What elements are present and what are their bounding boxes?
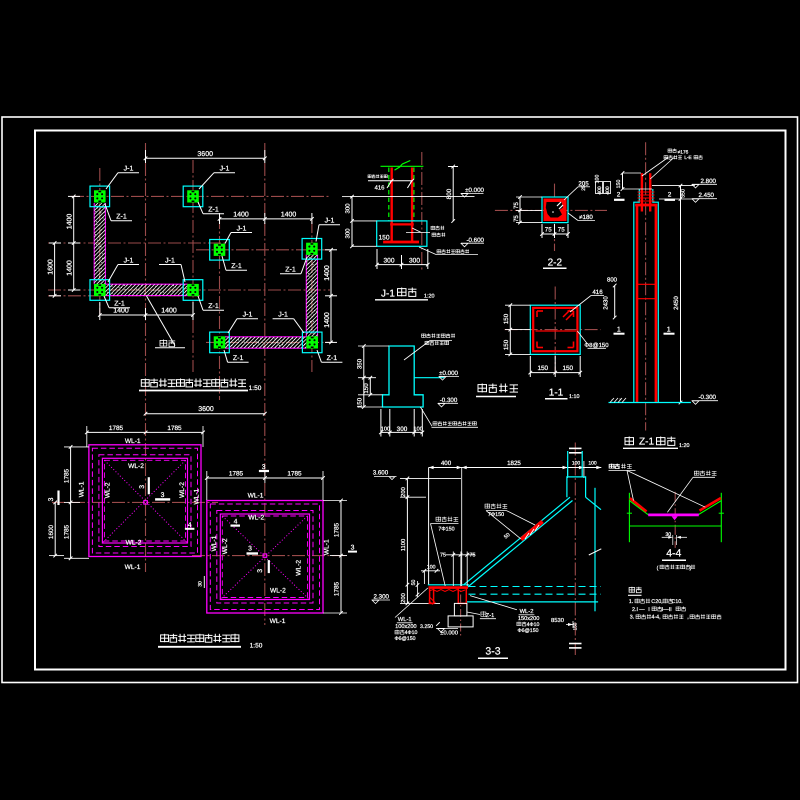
svg-text:J-1: J-1 <box>237 225 247 232</box>
svg-text:1-1: 1-1 <box>549 388 564 399</box>
svg-text:WL-2: WL-2 <box>128 463 144 470</box>
svg-text:300: 300 <box>345 228 352 239</box>
svg-text:30: 30 <box>665 532 671 538</box>
svg-text:150: 150 <box>616 180 622 189</box>
svg-text:4-4: 4-4 <box>666 548 681 560</box>
svg-text:Z-1: Z-1 <box>114 301 125 308</box>
svg-text:416: 416 <box>375 185 386 192</box>
svg-text:WL-2: WL-2 <box>222 538 229 554</box>
svg-text:1:10: 1:10 <box>569 394 580 400</box>
svg-text:800: 800 <box>446 188 453 199</box>
svg-text:300: 300 <box>409 257 420 264</box>
svg-text:-0.300: -0.300 <box>698 394 716 401</box>
svg-text:WL-2: WL-2 <box>270 587 286 594</box>
svg-text:WL-2: WL-2 <box>295 560 302 576</box>
svg-text:200: 200 <box>400 593 407 603</box>
svg-text:1400: 1400 <box>113 308 129 315</box>
svg-text:300: 300 <box>383 257 394 264</box>
svg-text:75: 75 <box>545 227 552 234</box>
svg-text:1785: 1785 <box>334 522 341 537</box>
svg-text:Z-1: Z-1 <box>208 303 219 310</box>
svg-text:150: 150 <box>573 622 578 630</box>
svg-text:3600: 3600 <box>198 406 214 413</box>
svg-text:1600: 1600 <box>47 259 54 275</box>
svg-text:WL-2: WL-2 <box>126 539 142 546</box>
svg-text:±0.000: ±0.000 <box>439 370 458 377</box>
svg-text:3.: 3. <box>630 615 635 621</box>
svg-text:150: 150 <box>357 397 364 408</box>
svg-text:2.300: 2.300 <box>374 593 390 600</box>
svg-text:): ) <box>690 565 692 571</box>
svg-text:2-2: 2-2 <box>548 258 563 269</box>
svg-text:1:50: 1:50 <box>249 385 262 392</box>
svg-text:Z-1: Z-1 <box>486 613 494 619</box>
svg-text:150: 150 <box>562 365 573 372</box>
svg-text:WL-2: WL-2 <box>248 514 264 521</box>
svg-text:100: 100 <box>414 427 423 433</box>
svg-text:7Φ150: 7Φ150 <box>488 512 504 518</box>
svg-text:Φ8@150: Φ8@150 <box>584 342 609 349</box>
svg-text:,I—II: ,I—II <box>660 607 671 613</box>
svg-text:350: 350 <box>681 189 687 198</box>
svg-text:Z-1: Z-1 <box>116 214 127 221</box>
svg-text:1.: 1. <box>629 599 634 605</box>
svg-text:3: 3 <box>351 545 355 552</box>
svg-text:1785: 1785 <box>63 524 70 539</box>
svg-text:J-1: J-1 <box>165 257 175 264</box>
svg-text:1785: 1785 <box>229 471 244 478</box>
svg-text:2450: 2450 <box>673 296 680 310</box>
svg-text:WL-1: WL-1 <box>248 493 264 500</box>
svg-text:J-1: J-1 <box>381 289 395 300</box>
svg-text:-0.300: -0.300 <box>440 397 458 404</box>
svg-text:Z-1: Z-1 <box>327 355 338 362</box>
svg-text:3-3: 3-3 <box>485 646 500 658</box>
svg-text:WL-2: WL-2 <box>179 482 186 498</box>
svg-text:75: 75 <box>513 215 520 222</box>
svg-text:100: 100 <box>588 460 597 466</box>
svg-text:30: 30 <box>198 581 204 587</box>
svg-text:≠180: ≠180 <box>579 214 593 221</box>
svg-text:C10.: C10. <box>671 599 682 605</box>
svg-text:WL-2: WL-2 <box>105 482 112 498</box>
svg-text:1785: 1785 <box>334 581 341 596</box>
svg-text:1: 1 <box>617 327 621 334</box>
svg-text:400: 400 <box>597 186 603 195</box>
svg-text:±0.000: ±0.000 <box>440 630 458 637</box>
svg-text:1400: 1400 <box>324 312 331 328</box>
svg-text:75: 75 <box>440 553 446 559</box>
svg-text:1785: 1785 <box>167 425 182 432</box>
svg-text:WL-2: WL-2 <box>520 608 534 615</box>
svg-text:WL-1: WL-1 <box>323 539 330 555</box>
svg-text:1:20: 1:20 <box>424 294 435 300</box>
svg-text:3.600: 3.600 <box>373 469 389 476</box>
svg-text:100x200: 100x200 <box>395 624 416 630</box>
svg-text:8530: 8530 <box>551 617 564 624</box>
svg-text:±0.000: ±0.000 <box>465 187 484 194</box>
svg-text:Z-1: Z-1 <box>233 355 244 362</box>
svg-text:1100: 1100 <box>400 539 407 551</box>
svg-text:WL-1: WL-1 <box>194 488 201 504</box>
svg-text:3: 3 <box>248 545 252 552</box>
svg-text:1785: 1785 <box>287 471 302 478</box>
svg-text:300: 300 <box>345 203 352 214</box>
svg-text:WL-1: WL-1 <box>398 617 412 623</box>
svg-text:400: 400 <box>605 186 611 195</box>
svg-text:4-4,: 4-4, <box>651 615 661 621</box>
svg-text:J-1: J-1 <box>243 312 253 319</box>
svg-text:150: 150 <box>503 313 510 324</box>
svg-text:1400: 1400 <box>324 265 331 281</box>
svg-text:2: 2 <box>617 192 621 199</box>
svg-text:(: ( <box>657 565 659 571</box>
svg-text:Z-1: Z-1 <box>639 437 654 448</box>
svg-text:Φ6@150: Φ6@150 <box>518 628 539 634</box>
svg-text:J-1: J-1 <box>124 166 134 173</box>
svg-text:3600: 3600 <box>197 151 213 158</box>
svg-text:4: 4 <box>234 518 238 525</box>
svg-text:150: 150 <box>537 365 548 372</box>
svg-text:-0.600: -0.600 <box>466 237 484 244</box>
svg-text:1400: 1400 <box>281 212 297 219</box>
svg-text:Z-1: Z-1 <box>208 207 219 214</box>
svg-text:150: 150 <box>503 339 510 350</box>
svg-text:1600: 1600 <box>48 524 55 539</box>
svg-text:1:50: 1:50 <box>250 643 263 650</box>
svg-text:1785: 1785 <box>109 425 124 432</box>
svg-text:2.I: 2.I <box>632 607 638 613</box>
svg-text:I: I <box>648 607 650 613</box>
svg-text:100: 100 <box>572 460 581 466</box>
svg-text:≠176: ≠176 <box>678 150 689 156</box>
svg-text:L-E: L-E <box>684 155 691 161</box>
svg-text:3: 3 <box>161 492 165 499</box>
svg-text:WL-1: WL-1 <box>125 564 141 571</box>
svg-text:1400: 1400 <box>67 260 74 276</box>
svg-text:350: 350 <box>357 358 364 369</box>
svg-text:3.250: 3.250 <box>420 624 433 630</box>
svg-text:416: 416 <box>592 289 603 296</box>
svg-text:2430: 2430 <box>603 296 610 310</box>
svg-text:2: 2 <box>668 192 672 199</box>
svg-text:Z-1: Z-1 <box>285 267 296 274</box>
svg-text:J-1: J-1 <box>220 166 230 173</box>
svg-text:1400: 1400 <box>161 308 177 315</box>
svg-text:1400: 1400 <box>233 212 249 219</box>
svg-text:1825: 1825 <box>507 460 521 467</box>
svg-text:J-1: J-1 <box>325 218 335 225</box>
svg-text:Z-1: Z-1 <box>231 263 242 270</box>
svg-text:1785: 1785 <box>63 468 70 483</box>
svg-text:200: 200 <box>400 487 407 497</box>
svg-text:150: 150 <box>363 383 370 394</box>
svg-text:100: 100 <box>381 427 390 433</box>
svg-text:Φ6@150: Φ6@150 <box>395 636 416 642</box>
svg-text:J-1: J-1 <box>124 257 134 264</box>
svg-text:1:20: 1:20 <box>679 443 690 449</box>
svg-text:3: 3 <box>257 569 264 573</box>
svg-text:50: 50 <box>411 580 417 586</box>
svg-text:—: — <box>639 607 645 613</box>
svg-text:WL-1: WL-1 <box>79 481 86 497</box>
svg-text:100: 100 <box>427 565 436 571</box>
svg-text:2.450: 2.450 <box>699 192 715 199</box>
svg-text:400: 400 <box>441 460 452 467</box>
svg-text:WL-1: WL-1 <box>270 618 286 625</box>
svg-text:C20,: C20, <box>651 599 663 605</box>
svg-text:7Φ150: 7Φ150 <box>438 527 454 533</box>
svg-text:1: 1 <box>667 327 671 334</box>
svg-text:800: 800 <box>607 277 618 284</box>
svg-text:75: 75 <box>558 227 565 234</box>
svg-text:300: 300 <box>397 426 408 433</box>
svg-text:3: 3 <box>139 485 146 489</box>
svg-text:WL-1: WL-1 <box>125 438 141 445</box>
svg-text:25: 25 <box>581 185 587 191</box>
svg-text:3: 3 <box>48 497 55 501</box>
svg-text:2.800: 2.800 <box>701 178 717 185</box>
svg-text:75: 75 <box>470 553 476 559</box>
svg-text:WL-1: WL-1 <box>211 535 218 551</box>
svg-text:75: 75 <box>513 202 520 209</box>
svg-text:150: 150 <box>378 235 389 242</box>
svg-text:J-1: J-1 <box>278 312 288 319</box>
svg-text:1400: 1400 <box>67 214 74 230</box>
